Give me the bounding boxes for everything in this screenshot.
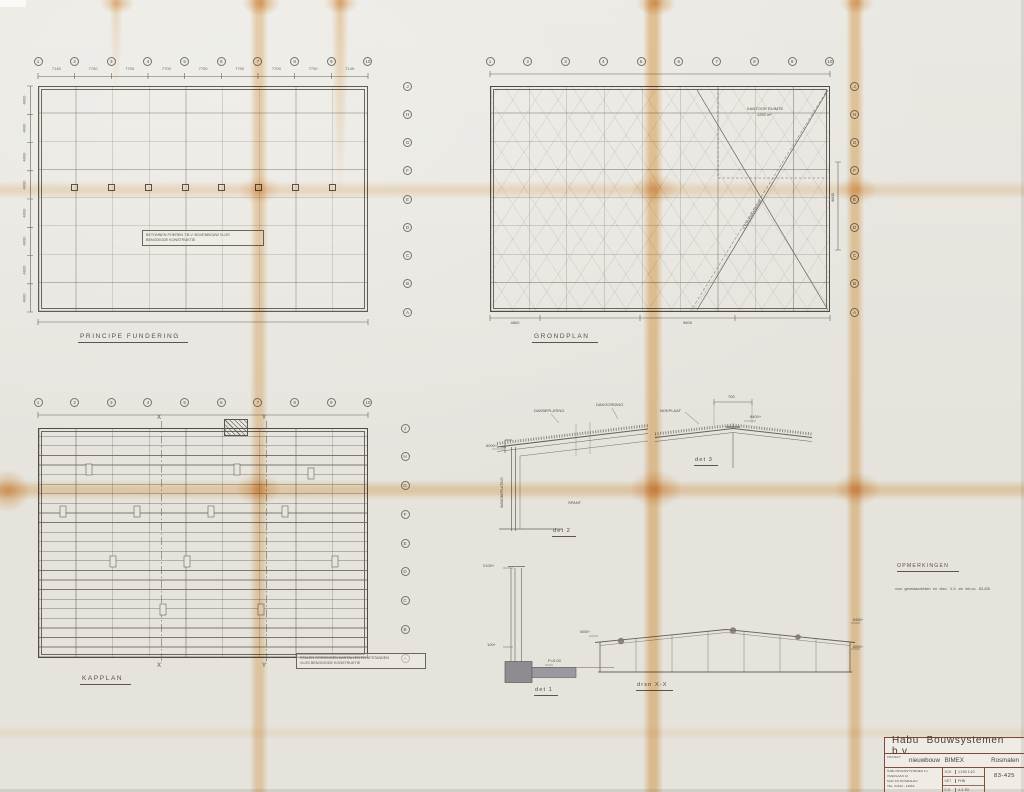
grid-bubble: 10: [363, 57, 372, 66]
kantoor-label: KANTOOR RUIMTE: [747, 106, 783, 111]
sheet-linework: [0, 0, 1024, 792]
grondplan-row-bubbles: JHGFEDCBA: [850, 82, 859, 317]
grid-bubble: A: [403, 308, 412, 317]
grid-bubble: 2: [523, 57, 532, 66]
grid-bubble: 4: [143, 398, 152, 407]
footing-square: [108, 184, 115, 191]
section-marker-x: X: [157, 415, 161, 421]
det3-level-mark: 8400+: [750, 414, 761, 419]
wandbeplating-label: WANDBEPLATING: [500, 477, 504, 508]
kapplan-lines: [38, 412, 368, 664]
fundering-note-box: BETONNEN POEREN T.B.V. BOVENBOUW VLGS BE…: [142, 230, 264, 246]
dimension-value: 4800: [9, 180, 37, 189]
grid-bubble: 9: [788, 57, 797, 66]
grondplan-lines: [490, 71, 841, 321]
scale-row: SCH. 1:100 1:10: [943, 768, 984, 777]
grid-bubble: H: [401, 452, 410, 461]
grid-bubble: C: [403, 251, 412, 260]
fundering-footings-row: [71, 184, 336, 191]
grid-bubble: 6: [674, 57, 683, 66]
project-city: Rosmalen: [991, 757, 1019, 764]
grid-bubble: 1: [486, 57, 495, 66]
fundering-left-dimensions: 48004800480048004800480048004800: [19, 86, 28, 312]
peil-label: P=0.00: [548, 658, 561, 663]
grid-bubble: 2: [70, 57, 79, 66]
grid-bubble: H: [403, 110, 412, 119]
grid-bubble: 1: [34, 57, 43, 66]
det1-level-low: 100+: [487, 642, 496, 647]
title-block: Habu Bouwsystemen b.v. PROJECT nieuwbouw…: [884, 737, 1024, 792]
fundering-top-dimensions: 714577007700770077007700770077007145: [38, 66, 368, 74]
grid-bubble: 10: [825, 57, 834, 66]
title-block-detail-row: HABU BOUWSYSTEMEN b.v. OVERLAAN 12 5242 …: [885, 768, 1024, 792]
grid-bubble: 5: [180, 398, 189, 407]
grid-bubble: 7: [253, 57, 262, 66]
grid-bubble: 6: [217, 57, 226, 66]
grid-bubble: 5: [180, 57, 189, 66]
grid-bubble: 8: [750, 57, 759, 66]
grid-bubble: 7: [253, 398, 262, 407]
grid-bubble: G: [401, 481, 410, 490]
grid-bubble: J: [850, 82, 859, 91]
grid-bubble: E: [401, 539, 410, 548]
grondplan-column-bubbles: 12345678910: [486, 57, 835, 66]
dimension-value: 4800: [9, 96, 37, 105]
grid-bubble: C: [850, 251, 859, 260]
nokplaat-label: NOKPLAAT: [660, 408, 681, 413]
dimension-value: 7700: [295, 66, 332, 74]
note-line: VLGS BENODIGDE KONSTRUKTIE: [300, 661, 422, 667]
kapplan-column-bubbles: 12345678910: [34, 398, 373, 407]
dimension-value: 4800: [9, 265, 37, 274]
det2-linework: [492, 408, 648, 531]
title-block-project-row: PROJECT nieuwbouw BIMEX Rosmalen: [885, 754, 1024, 768]
title-block-company-row: Habu Bouwsystemen b.v.: [885, 738, 1024, 754]
det1-title: det 1: [534, 687, 558, 696]
grid-bubble: J: [403, 82, 412, 91]
grondplan-bottom-dimension: 4800: [490, 320, 540, 325]
grid-bubble: F: [401, 510, 410, 519]
note-line: BENODIGDE KONSTRUKTIE: [146, 238, 260, 244]
grid-bubble: 6: [217, 398, 226, 407]
kapplan-title: KAPPLAN: [80, 675, 131, 685]
grid-bubble: C: [401, 596, 410, 605]
dimension-value: 7145: [331, 66, 368, 74]
grid-bubble: E: [403, 195, 412, 204]
kapplan-row-bubbles: JHGFEDCBA: [401, 424, 410, 663]
det3-title: det 3: [694, 457, 718, 466]
grid-bubble: 3: [107, 398, 116, 407]
dimension-value: 7700: [75, 66, 112, 74]
fundering-title: PRINCIPE FUNDERING: [78, 333, 188, 343]
det1-linework: [503, 567, 614, 683]
footing-square: [182, 184, 189, 191]
dimension-value: 7700: [258, 66, 295, 74]
blueprint-sheet: 12345678910 7145770077007700770077007700…: [0, 0, 1024, 792]
project-label: PROJECT: [887, 755, 901, 759]
address-line: TEL. 04192 - 13963: [887, 784, 940, 789]
grid-bubble: 10: [363, 398, 372, 407]
fundering-dimension-lines: [27, 73, 368, 325]
date-key: D.D.: [943, 788, 956, 792]
footing-square: [255, 184, 262, 191]
dimension-value: 7700: [185, 66, 222, 74]
drawing-number: 83-425: [985, 768, 1024, 792]
opmerkingen-title: OPMERKINGEN: [897, 563, 959, 572]
grid-bubble: 2: [70, 398, 79, 407]
dimension-value: 4800: [9, 152, 37, 161]
dimension-value: 7700: [111, 66, 148, 74]
grid-bubble: 1: [34, 398, 43, 407]
det2-title: det 2: [552, 528, 576, 537]
grid-bubble: J: [401, 424, 410, 433]
company-address: HABU BOUWSYSTEMEN b.v. OVERLAAN 12 5242 …: [885, 768, 943, 792]
det1-level-top: 2100+: [483, 563, 494, 568]
grid-bubble: B: [401, 625, 410, 634]
grid-bubble: A: [850, 308, 859, 317]
dimension-value: 7700: [148, 66, 185, 74]
doorsnede-linework: [589, 623, 860, 672]
doorsnede-title: drsn X-X: [636, 682, 673, 691]
footing-square: [71, 184, 78, 191]
dimension-value: 7700: [221, 66, 258, 74]
drawn-by-row: GET. FHB: [943, 777, 984, 786]
grid-bubble: 4: [599, 57, 608, 66]
footing-square: [292, 184, 299, 191]
grid-bubble: 7: [712, 57, 721, 66]
drawn-by-key: GET.: [943, 779, 956, 783]
fundering-row-bubbles: JHGFEDCBA: [403, 82, 412, 317]
date-row: D.D. 4-3-'83: [943, 786, 984, 792]
dakgording-label: DAKGORDING: [596, 402, 623, 407]
grid-bubble: 9: [327, 57, 336, 66]
dimension-value: 4800: [9, 293, 37, 302]
spant-label: SPANT: [568, 500, 581, 505]
grid-bubble: F: [403, 166, 412, 175]
section-marker-y: Y: [262, 415, 266, 421]
grid-bubble: 4: [143, 57, 152, 66]
scale-value: 1:100 1:10: [956, 770, 975, 774]
grid-bubble: 3: [561, 57, 570, 66]
grid-bubble: 5: [637, 57, 646, 66]
date-value: 4-3-'83: [956, 788, 969, 792]
dakbeplating-label: DAKBEPLATING: [534, 408, 564, 413]
doorsnede-level-left: 6000+: [580, 630, 590, 634]
project-name: nieuwbouw BIMEX: [909, 757, 964, 764]
doorsnede-level-right-top: 8400+: [853, 618, 863, 622]
footing-square: [145, 184, 152, 191]
grondplan-title: GRONDPLAN: [532, 333, 598, 343]
grid-bubble: 3: [107, 57, 116, 66]
doorsnede-level-right-low: 6000+: [853, 645, 863, 649]
grid-bubble: H: [850, 110, 859, 119]
grondplan-right-dimension: 4800: [830, 193, 835, 202]
section-marker-x: X: [157, 663, 161, 669]
footing-square: [329, 184, 336, 191]
grid-bubble: G: [403, 138, 412, 147]
grid-bubble: 8: [290, 398, 299, 407]
kapplan-bracing-symbol: [224, 419, 248, 436]
grid-bubble: B: [403, 279, 412, 288]
grid-bubble: B: [850, 279, 859, 288]
kapplan-openings: [60, 464, 338, 615]
footing-square: [218, 184, 225, 191]
fundering-column-bubbles: 12345678910: [34, 57, 373, 66]
drawing-info-cells: SCH. 1:100 1:10 GET. FHB D.D. 4-3-'83: [943, 768, 985, 792]
dimension-value: 4800: [9, 209, 37, 218]
dimension-value: 7145: [38, 66, 75, 74]
kapplan-note-box: STALEN GORDINGEN AANTALLEN EN AFSTANDEN …: [296, 653, 426, 669]
dimension-value: 4800: [9, 237, 37, 246]
grid-bubble: F: [850, 166, 859, 175]
drawn-by-value: FHB: [956, 779, 965, 783]
grid-bubble: E: [850, 195, 859, 204]
det3-dimension: 700: [728, 394, 735, 399]
grid-bubble: D: [403, 223, 412, 232]
kantoor-area-label: ±250 m²: [757, 112, 772, 117]
grid-bubble: G: [850, 138, 859, 147]
grid-bubble: D: [850, 223, 859, 232]
section-marker-y: Y: [262, 663, 266, 669]
grid-bubble: 9: [327, 398, 336, 407]
opmerkingen-note: voor gevelaanzichten en drsn. X-X zie te…: [895, 587, 990, 591]
scale-key: SCH.: [943, 770, 956, 774]
dimension-value: 4800: [9, 124, 37, 133]
grid-bubble: D: [401, 567, 410, 576]
det2-level-mark: 6000+: [486, 443, 497, 448]
grondplan-bottom-dimension: 9600: [640, 320, 735, 325]
grid-bubble: 8: [290, 57, 299, 66]
